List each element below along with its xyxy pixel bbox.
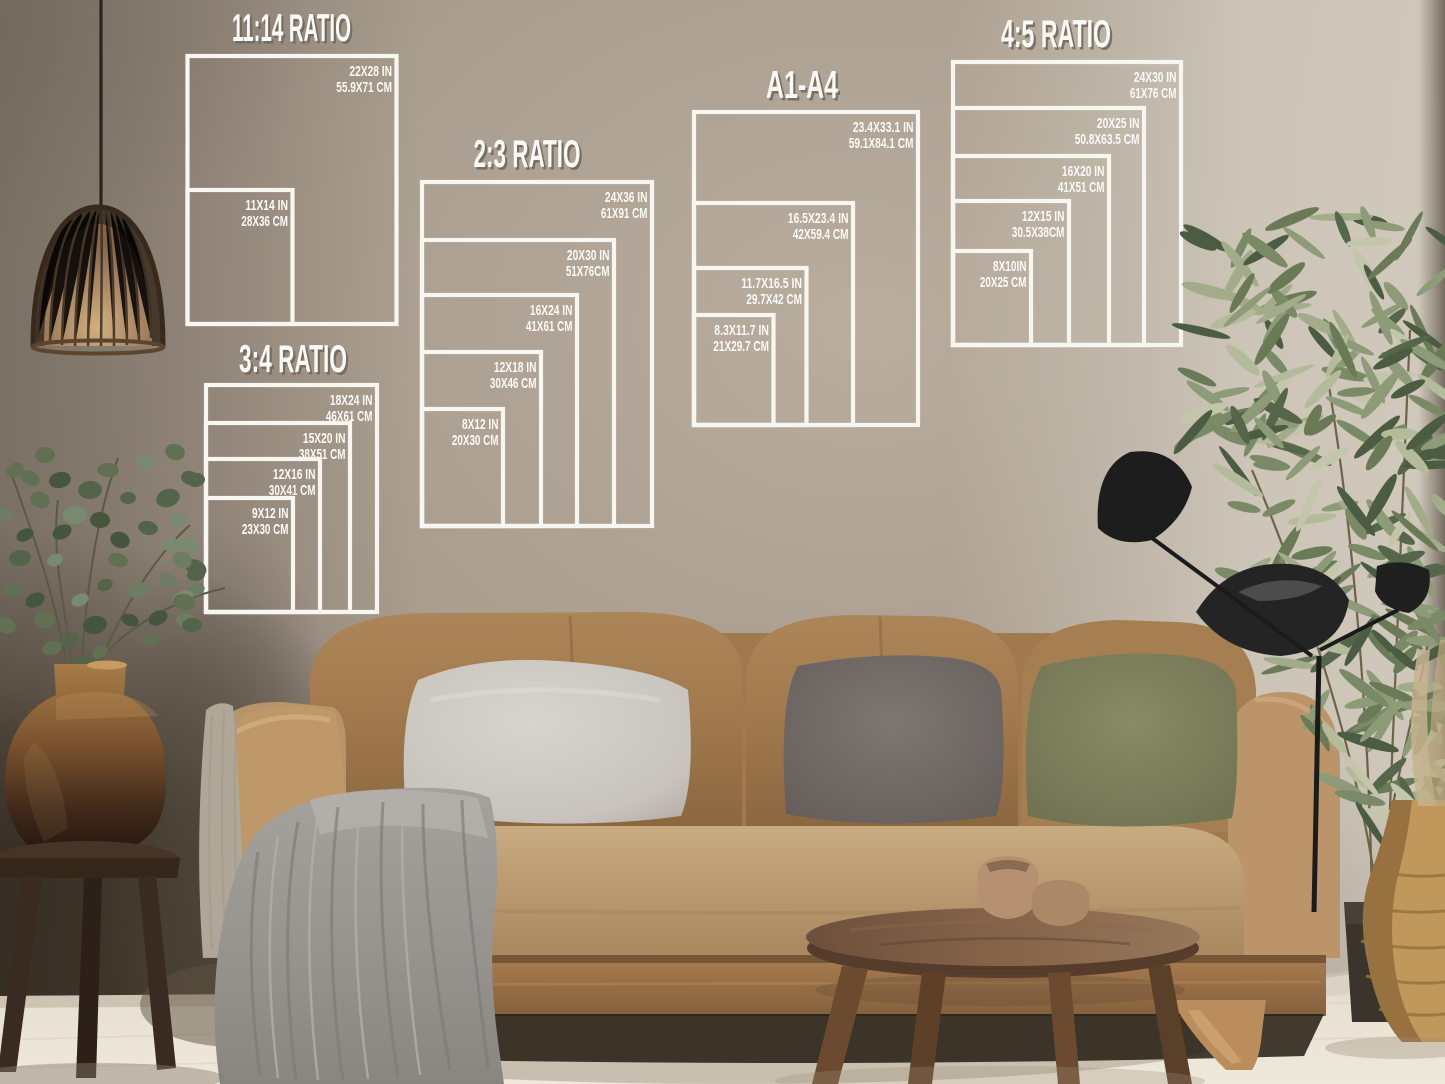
svg-text:4:5 RATIO: 4:5 RATIO <box>1001 13 1111 56</box>
svg-text:20X30 CM: 20X30 CM <box>452 432 499 449</box>
svg-text:59.1X84.1 CM: 59.1X84.1 CM <box>849 135 914 152</box>
svg-text:A1-A4: A1-A4 <box>766 64 838 107</box>
svg-text:8X10IN: 8X10IN <box>993 258 1027 275</box>
svg-text:50.8X63.5 CM: 50.8X63.5 CM <box>1075 131 1140 148</box>
svg-text:30.5X38CM: 30.5X38CM <box>1012 224 1065 241</box>
svg-text:23X30 CM: 23X30 CM <box>242 521 289 538</box>
svg-text:18X24 IN: 18X24 IN <box>330 392 373 409</box>
svg-text:42X59.4 CM: 42X59.4 CM <box>793 226 849 243</box>
svg-text:16X20 IN: 16X20 IN <box>1062 163 1105 180</box>
svg-text:61X76 CM: 61X76 CM <box>1130 85 1177 102</box>
svg-text:8X12 IN: 8X12 IN <box>462 416 499 433</box>
svg-text:20X25 CM: 20X25 CM <box>980 274 1027 291</box>
svg-text:51X76CM: 51X76CM <box>566 263 610 280</box>
svg-text:41X61 CM: 41X61 CM <box>526 318 573 335</box>
svg-text:24X30 IN: 24X30 IN <box>1134 69 1177 86</box>
svg-text:38X51 CM: 38X51 CM <box>299 446 346 463</box>
svg-text:16.5X23.4 IN: 16.5X23.4 IN <box>788 210 849 227</box>
svg-text:2:3 RATIO: 2:3 RATIO <box>474 133 581 176</box>
svg-text:22X28 IN: 22X28 IN <box>349 63 392 80</box>
svg-text:29.7X42 CM: 29.7X42 CM <box>746 291 802 308</box>
svg-text:23.4X33.1 IN: 23.4X33.1 IN <box>853 119 914 136</box>
svg-text:16X24 IN: 16X24 IN <box>530 302 573 319</box>
svg-text:11:14 RATIO: 11:14 RATIO <box>232 7 351 50</box>
svg-text:12X16 IN: 12X16 IN <box>273 466 316 483</box>
svg-text:46X61 CM: 46X61 CM <box>326 408 373 425</box>
svg-text:12X15 IN: 12X15 IN <box>1022 208 1065 225</box>
svg-text:12X18 IN: 12X18 IN <box>494 359 537 376</box>
svg-text:11.7X16.5 IN: 11.7X16.5 IN <box>741 275 802 292</box>
svg-text:20X25 IN: 20X25 IN <box>1097 115 1140 132</box>
svg-text:11X14 IN: 11X14 IN <box>245 197 288 214</box>
svg-text:30X46 CM: 30X46 CM <box>490 375 537 392</box>
svg-text:61X91 CM: 61X91 CM <box>601 205 648 222</box>
svg-text:9X12 IN: 9X12 IN <box>252 505 289 522</box>
svg-text:28X36 CM: 28X36 CM <box>241 213 288 230</box>
svg-text:3:4 RATIO: 3:4 RATIO <box>239 338 347 381</box>
svg-text:55.9X71 CM: 55.9X71 CM <box>336 79 392 96</box>
svg-text:20X30 IN: 20X30 IN <box>567 247 610 264</box>
svg-text:15X20 IN: 15X20 IN <box>303 430 346 447</box>
svg-text:41X51 CM: 41X51 CM <box>1058 179 1105 196</box>
svg-text:24X36 IN: 24X36 IN <box>605 189 648 206</box>
svg-text:30X41 CM: 30X41 CM <box>269 482 316 499</box>
svg-text:8.3X11.7 IN: 8.3X11.7 IN <box>714 322 769 339</box>
svg-text:21X29.7 CM: 21X29.7 CM <box>713 338 769 355</box>
